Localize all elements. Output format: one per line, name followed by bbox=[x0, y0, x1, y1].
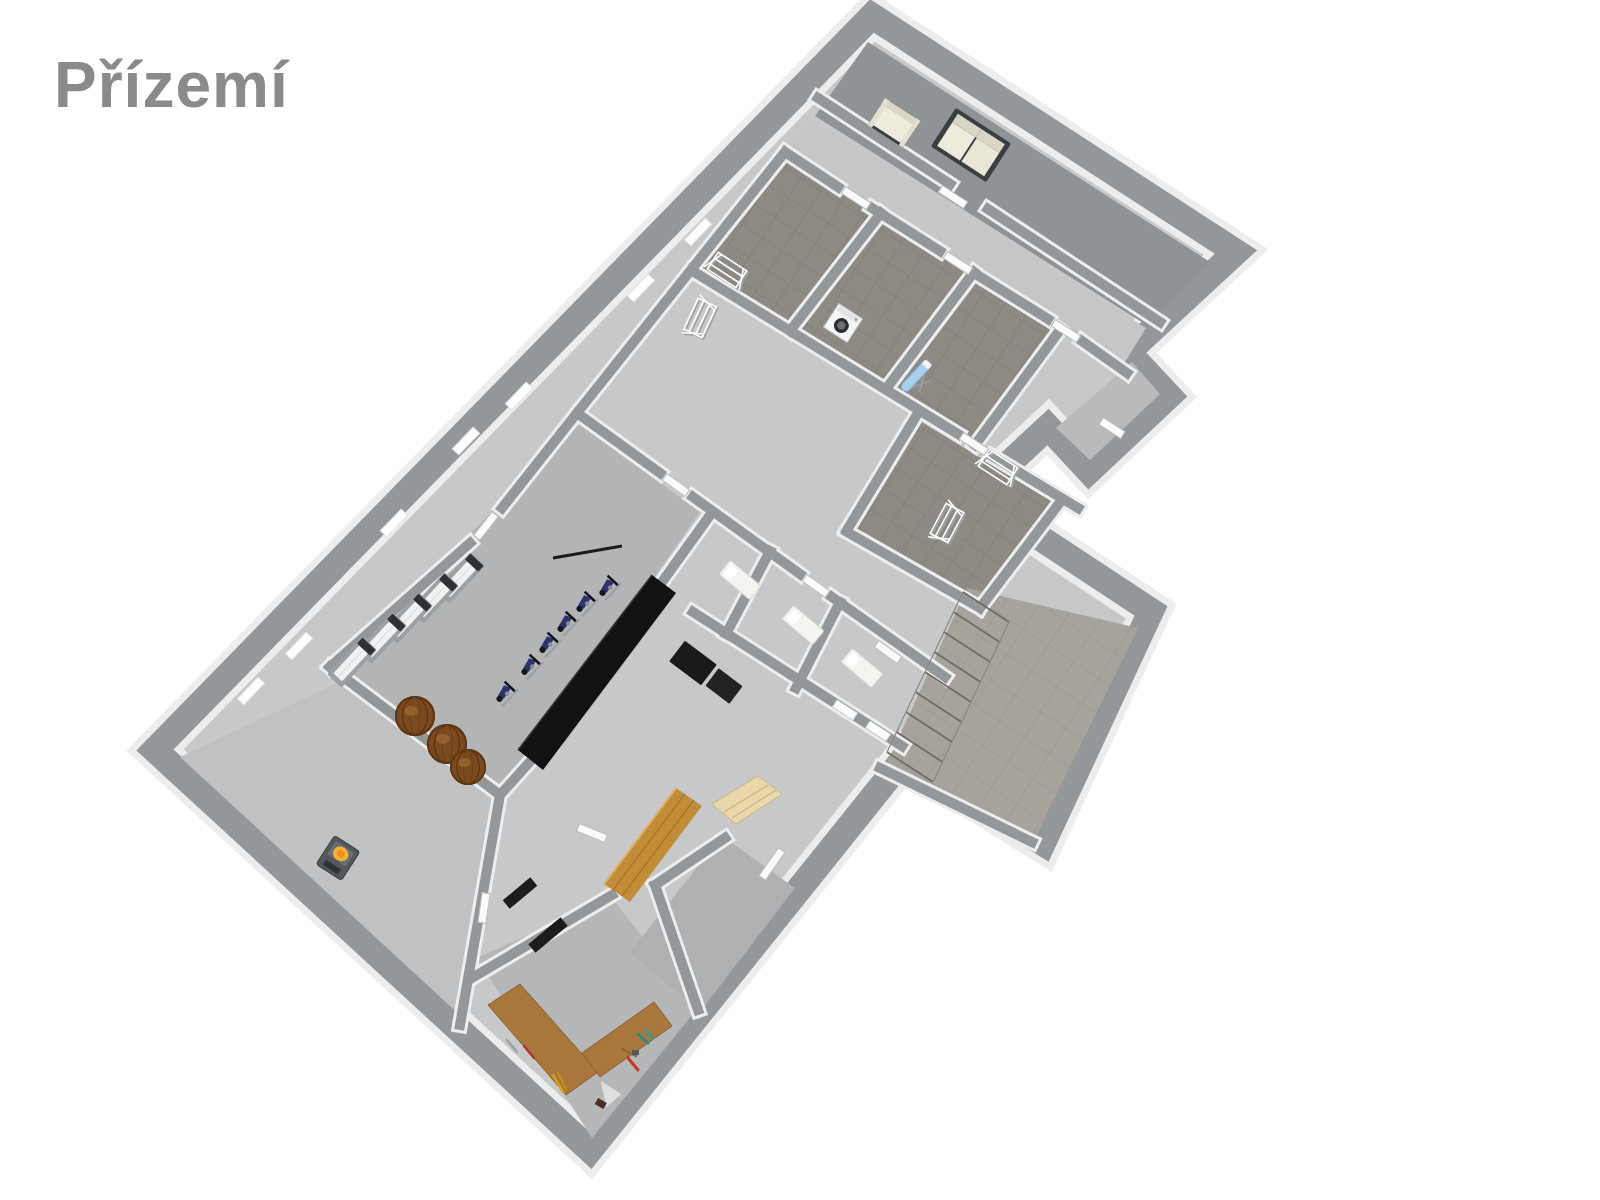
floor-plan bbox=[0, 0, 1600, 1200]
wine-barrel-icon bbox=[450, 749, 486, 785]
wine-barrel-icon bbox=[395, 696, 435, 736]
page: Přízemí bbox=[0, 0, 1600, 1200]
